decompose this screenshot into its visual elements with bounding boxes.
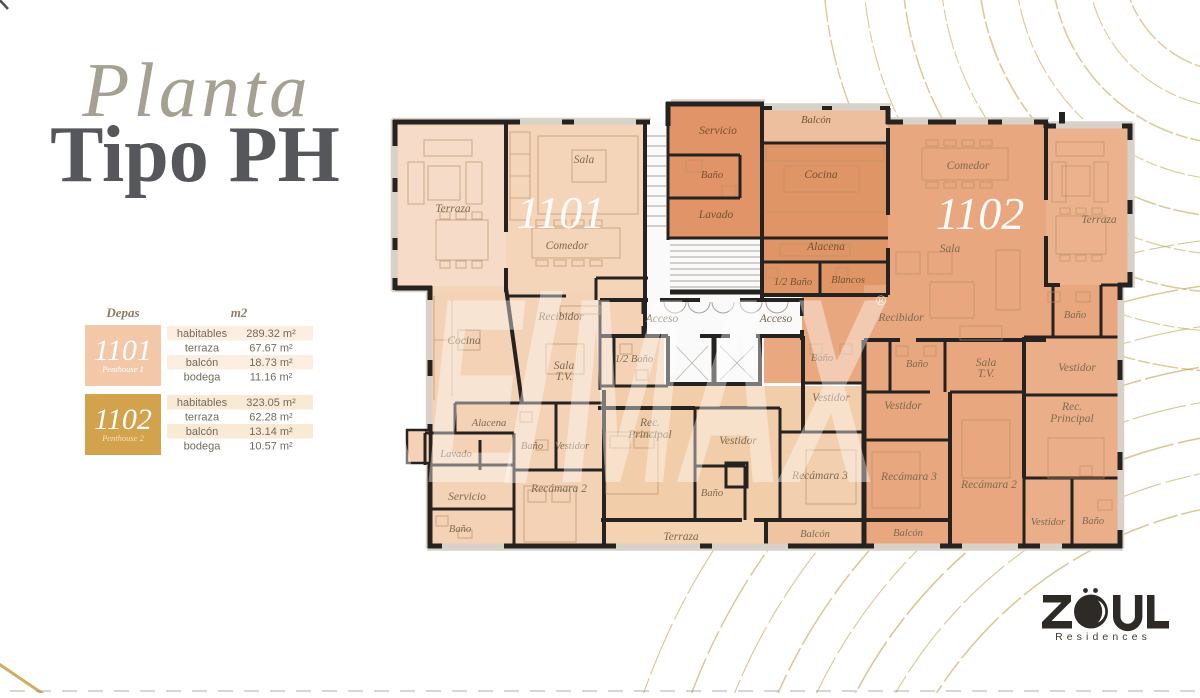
svg-text:Servicio: Servicio xyxy=(699,125,737,137)
svg-text:10.57 m²: 10.57 m² xyxy=(249,441,293,453)
svg-text:T.V.: T.V. xyxy=(978,368,995,380)
svg-text:Rec.: Rec. xyxy=(1061,401,1082,413)
svg-text:Baño: Baño xyxy=(906,359,928,370)
svg-text:1102: 1102 xyxy=(94,403,152,436)
svg-text:Baño: Baño xyxy=(1082,516,1104,527)
svg-text:Penthouse 2: Penthouse 2 xyxy=(101,433,145,443)
svg-text:balcón: balcón xyxy=(186,357,218,369)
svg-text:Baño: Baño xyxy=(1064,310,1086,321)
svg-text:Sala: Sala xyxy=(940,243,961,255)
svg-text:Depas: Depas xyxy=(105,305,139,320)
svg-text:RE: RE xyxy=(322,245,526,539)
svg-text:bodega: bodega xyxy=(184,441,222,453)
svg-text:Vestidor: Vestidor xyxy=(1058,362,1096,374)
svg-text:Terraza: Terraza xyxy=(1081,214,1117,226)
svg-text:Comedor: Comedor xyxy=(947,160,990,172)
svg-text:289.32 m²: 289.32 m² xyxy=(246,328,296,340)
svg-text:balcón: balcón xyxy=(186,426,218,438)
svg-text:67.67 m²: 67.67 m² xyxy=(249,343,293,355)
svg-text:Recámara 2: Recámara 2 xyxy=(960,479,1017,491)
svg-text:Terraza: Terraza xyxy=(435,203,471,215)
svg-text:Baño: Baño xyxy=(701,170,723,181)
svg-text:MAX: MAX xyxy=(560,245,887,539)
svg-text:bodega: bodega xyxy=(184,372,222,384)
svg-text:18.73 m²: 18.73 m² xyxy=(249,357,293,369)
svg-text:323.05 m²: 323.05 m² xyxy=(246,397,296,409)
svg-text:terraza: terraza xyxy=(185,412,220,424)
svg-text:terraza: terraza xyxy=(185,343,220,355)
svg-text:habitables: habitables xyxy=(177,397,228,409)
svg-text:Vestidor: Vestidor xyxy=(1031,517,1066,528)
svg-text:Principal: Principal xyxy=(1049,413,1093,425)
svg-text:Residences: Residences xyxy=(1055,631,1151,643)
svg-text:13.14 m²: 13.14 m² xyxy=(249,426,293,438)
svg-text:habitables: habitables xyxy=(177,328,228,340)
svg-text:Sala: Sala xyxy=(574,154,595,166)
svg-text:Balcón: Balcón xyxy=(893,528,923,539)
svg-text:11.16 m²: 11.16 m² xyxy=(250,372,293,384)
svg-text:Vestidor: Vestidor xyxy=(884,400,922,412)
svg-text:Penthouse 1: Penthouse 1 xyxy=(101,364,144,374)
svg-text:Cocina: Cocina xyxy=(804,169,837,181)
svg-text:Recibidor: Recibidor xyxy=(877,312,924,324)
svg-text:®: ® xyxy=(876,292,887,308)
svg-text:Lavado: Lavado xyxy=(698,209,734,221)
svg-text:Recámara 3: Recámara 3 xyxy=(880,471,937,483)
svg-text:Balcón: Balcón xyxy=(801,115,831,126)
svg-text:Tipo PH: Tipo PH xyxy=(50,111,340,199)
svg-text:1101: 1101 xyxy=(94,334,152,367)
svg-text:m2: m2 xyxy=(231,305,248,320)
svg-text:62.28 m²: 62.28 m² xyxy=(249,412,293,424)
svg-text:1102: 1102 xyxy=(936,188,1025,239)
svg-text:1101: 1101 xyxy=(517,187,606,238)
